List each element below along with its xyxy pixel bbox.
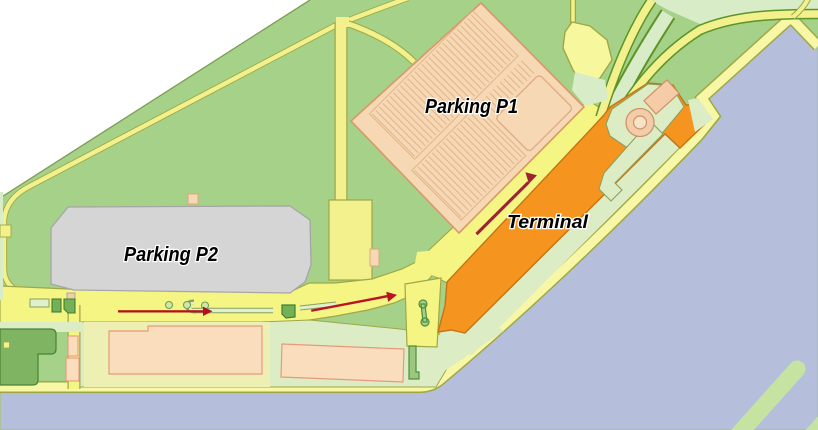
svg-text:Parking P1: Parking P1	[425, 96, 518, 118]
svg-text:Parking P2: Parking P2	[124, 244, 218, 266]
svg-text:Terminal: Terminal	[507, 212, 589, 232]
